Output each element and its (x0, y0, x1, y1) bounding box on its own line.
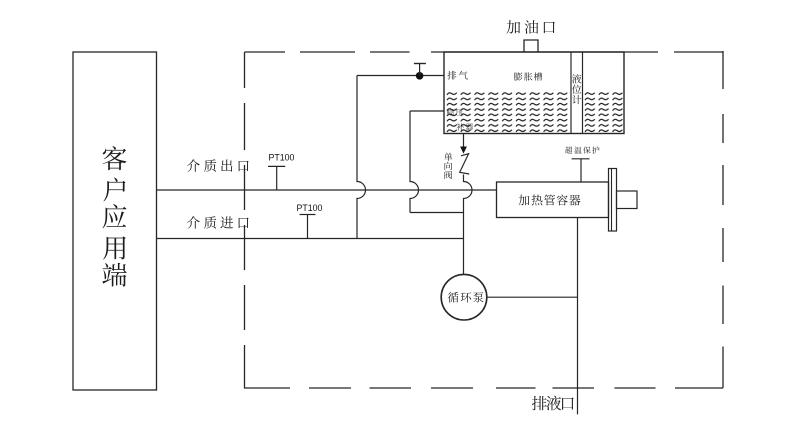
svg-text:PT100: PT100 (269, 153, 295, 163)
svg-text:PT100: PT100 (297, 203, 323, 213)
